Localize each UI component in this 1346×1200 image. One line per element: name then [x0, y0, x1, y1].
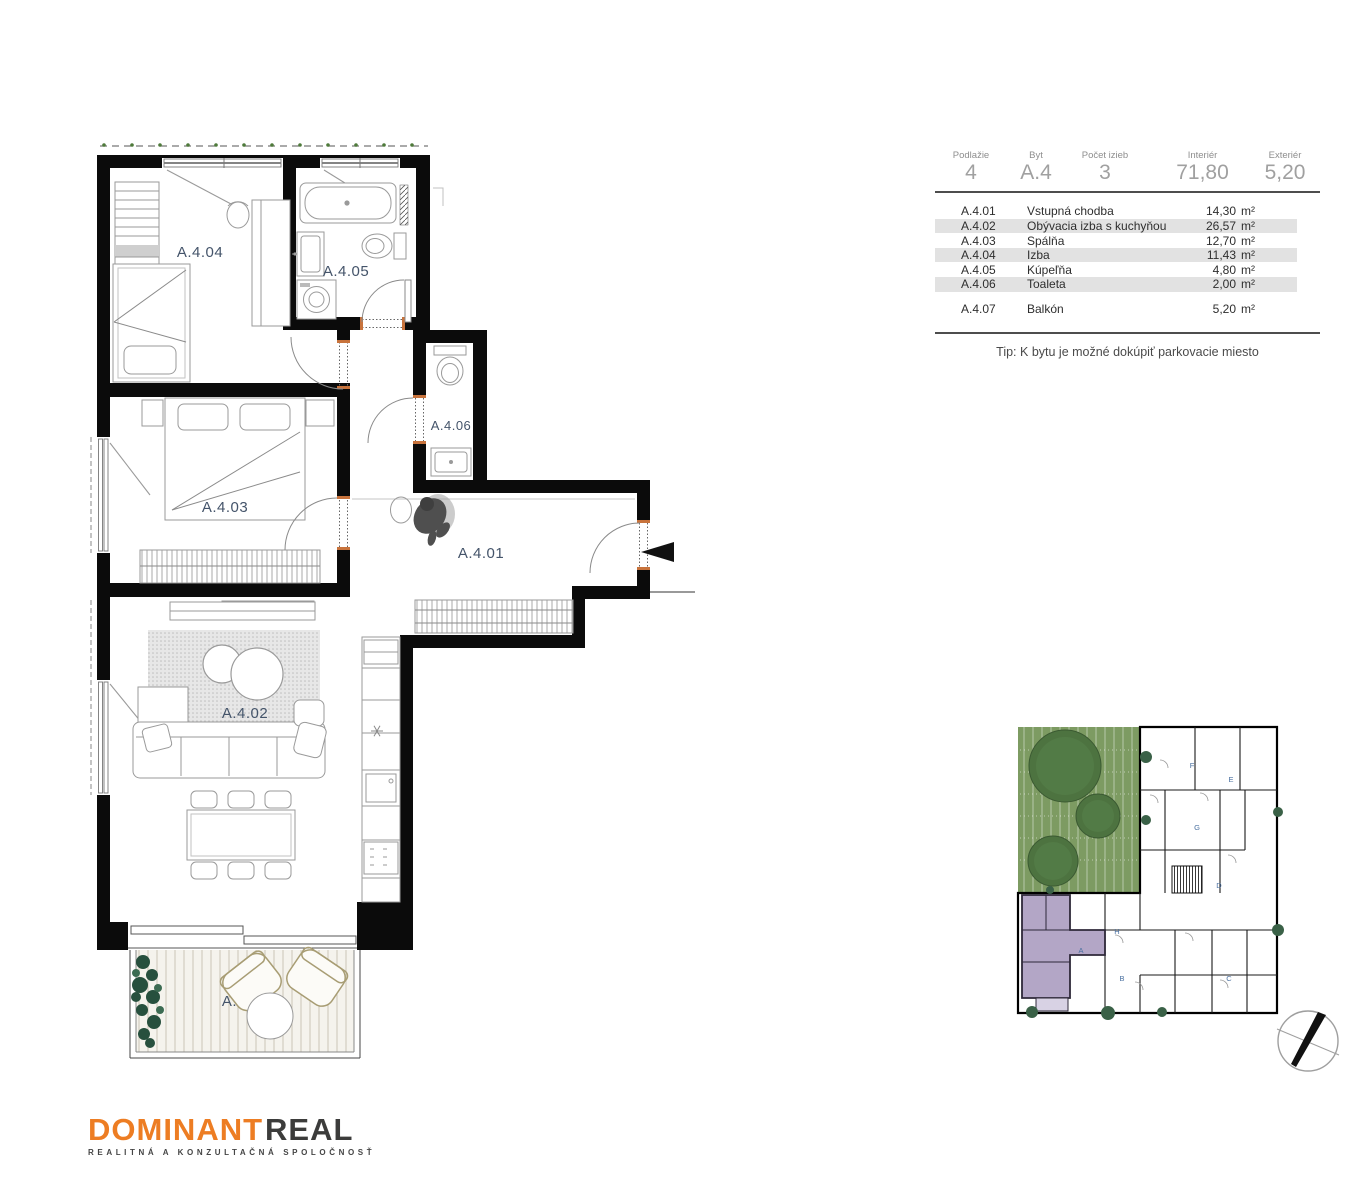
- shaft-hatch: [400, 185, 408, 225]
- unit-label-b: B: [1119, 974, 1124, 983]
- window-bedroom: [97, 437, 150, 553]
- row-area: 11,43: [1186, 248, 1236, 262]
- coffee-table-icon: [231, 648, 283, 700]
- table-row: A.4.07 Balkón 5,20 m²: [935, 302, 1297, 317]
- unit-label-g: G: [1194, 823, 1200, 832]
- row-unit: m²: [1236, 277, 1267, 291]
- kitchen-counter-icon: [362, 637, 400, 902]
- hall-wardrobe-icon: [415, 600, 573, 633]
- summary-room-count: Počet izieb 3: [1065, 150, 1145, 184]
- bathroom-door: [360, 280, 411, 330]
- brand-wordmark: DOMINANTREAL: [88, 1114, 375, 1145]
- summary-interior: Interiér 71,80: [1155, 150, 1250, 184]
- summary-interior-value: 71,80: [1155, 162, 1250, 184]
- table-row: A.4.04 Izba 11,43 m²: [935, 248, 1297, 263]
- table-row: A.4.05 Kúpeľňa 4,80 m²: [935, 262, 1297, 277]
- unit-label-d: D: [1216, 881, 1222, 890]
- room-door: [291, 337, 350, 389]
- row-name: Izba: [1027, 248, 1186, 262]
- unit-label-h: H: [1114, 927, 1119, 936]
- summary-exterior-label: Exteriér: [1250, 150, 1320, 161]
- parking-tip: Tip: K bytu je možné dokúpiť parkovacie …: [935, 345, 1320, 359]
- summary-room-count-value: 3: [1065, 162, 1145, 184]
- stairwell: [1172, 866, 1202, 893]
- balcony-slider-door: [128, 924, 357, 948]
- balcony-table-icon: [247, 993, 293, 1039]
- furniture: [113, 182, 635, 902]
- summary-unit-label: Byt: [1007, 150, 1065, 161]
- unit-summary-panel: Podlažie 4 Byt A.4 Počet izieb 3 Interié…: [935, 150, 1320, 359]
- row-name: Vstupná chodba: [1027, 204, 1186, 218]
- highlighted-unit-balcony: [1036, 998, 1068, 1011]
- cooktop-icon: [364, 842, 398, 874]
- row-unit: m²: [1236, 263, 1267, 277]
- row-name: Kúpeľňa: [1027, 263, 1186, 277]
- summary-exterior: Exteriér 5,20: [1250, 150, 1320, 184]
- room-area-table: A.4.01 Vstupná chodba 14,30 m² A.4.02 Ob…: [935, 204, 1297, 316]
- summary-unit: Byt A.4: [1007, 150, 1065, 184]
- row-name: Balkón: [1027, 302, 1186, 316]
- summary-header: Podlažie 4 Byt A.4 Počet izieb 3 Interié…: [935, 150, 1320, 184]
- bathtub-icon: [300, 183, 396, 223]
- floorplan-sheet: A.4.07 A.4.04 A.4.05 A.4.06 A.: [0, 0, 1346, 1200]
- bathroom-sink-icon: [292, 232, 324, 276]
- row-code: A.4.05: [935, 263, 1027, 277]
- room-label-kupelna: A.4.05: [323, 263, 369, 280]
- unit-label-f: F: [1190, 761, 1195, 770]
- unit-label-a: A: [1078, 946, 1083, 955]
- row-code: A.4.06: [935, 277, 1027, 291]
- floor-plan: A.4.07 A.4.04 A.4.05 A.4.06 A.: [91, 143, 695, 1058]
- row-area: 26,57: [1186, 219, 1236, 233]
- table-divider-top: [935, 191, 1320, 193]
- row-unit: m²: [1236, 302, 1267, 316]
- brand-secondary: REAL: [265, 1112, 353, 1147]
- balcony: A.4.07: [130, 945, 360, 1058]
- person-figure-icon: [407, 492, 455, 547]
- summary-floor-label: Podlažie: [935, 150, 1007, 161]
- site-plan: F E G D H A B C: [1018, 727, 1284, 1020]
- shelf-icon: [115, 182, 159, 264]
- room-label-chodba: A.4.01: [458, 545, 504, 562]
- unit-label-c: C: [1226, 974, 1232, 983]
- summary-floor: Podlažie 4: [935, 150, 1007, 184]
- row-area: 14,30: [1186, 204, 1236, 218]
- hall-mirror-icon: [391, 497, 412, 523]
- row-area: 5,20: [1186, 302, 1236, 316]
- toilet-door: [368, 395, 426, 444]
- summary-room-count-label: Počet izieb: [1065, 150, 1145, 161]
- room-label-toaleta: A.4.06: [431, 418, 472, 433]
- row-code: A.4.03: [935, 234, 1027, 248]
- row-area: 12,70: [1186, 234, 1236, 248]
- summary-interior-label: Interiér: [1155, 150, 1250, 161]
- room-label-izba: A.4.04: [177, 244, 223, 261]
- brand-primary: DOMINANT: [88, 1112, 263, 1147]
- entrance-arrow-icon: [641, 542, 674, 562]
- desk-icon: [227, 200, 290, 326]
- wc-sink-icon: [431, 448, 471, 476]
- toilet-icon-bathroom: [362, 233, 406, 259]
- table-row: A.4.03 Spálňa 12,70 m²: [935, 233, 1297, 248]
- row-code: A.4.01: [935, 204, 1027, 218]
- table-divider-bottom: [935, 332, 1320, 334]
- toilet-icon-wc: [434, 346, 466, 385]
- nightstand-icon: [142, 400, 163, 426]
- room-label-obyvacia: A.4.02: [222, 705, 268, 722]
- row-name: Obývacia izba s kuchyňou: [1027, 219, 1186, 233]
- row-code: A.4.07: [935, 302, 1027, 316]
- row-unit: m²: [1236, 234, 1267, 248]
- row-unit: m²: [1236, 248, 1267, 262]
- summary-unit-value: A.4: [1007, 162, 1065, 184]
- brand-tagline: REALITNÁ A KONZULTAČNÁ SPOLOČNOSŤ: [88, 1148, 375, 1157]
- room-label-spalna: A.4.03: [202, 499, 248, 516]
- table-row: A.4.06 Toaleta 2,00 m²: [935, 277, 1297, 292]
- unit-label-e: E: [1228, 775, 1233, 784]
- row-unit: m²: [1236, 219, 1267, 233]
- oven-icon: [366, 774, 396, 802]
- summary-exterior-value: 5,20: [1250, 162, 1320, 184]
- row-name: Toaleta: [1027, 277, 1186, 291]
- row-code: A.4.02: [935, 219, 1027, 233]
- row-name: Spálňa: [1027, 234, 1186, 248]
- nightstand-icon: [306, 400, 334, 426]
- table-row: A.4.02 Obývacia izba s kuchyňou 26,57 m²: [935, 219, 1297, 234]
- row-unit: m²: [1236, 204, 1267, 218]
- compass-icon: [1277, 1011, 1339, 1071]
- summary-floor-value: 4: [935, 162, 1007, 184]
- table-row: A.4.01 Vstupná chodba 14,30 m²: [935, 204, 1297, 219]
- row-code: A.4.04: [935, 248, 1027, 262]
- dining-set-icon: [187, 791, 295, 879]
- row-area: 2,00: [1186, 277, 1236, 291]
- washing-machine-icon: [297, 280, 336, 319]
- company-logo: DOMINANTREAL REALITNÁ A KONZULTAČNÁ SPOL…: [88, 1114, 375, 1157]
- row-area: 4,80: [1186, 263, 1236, 277]
- single-bed-icon: [113, 264, 190, 382]
- neighbor-wall-hint: [433, 188, 443, 206]
